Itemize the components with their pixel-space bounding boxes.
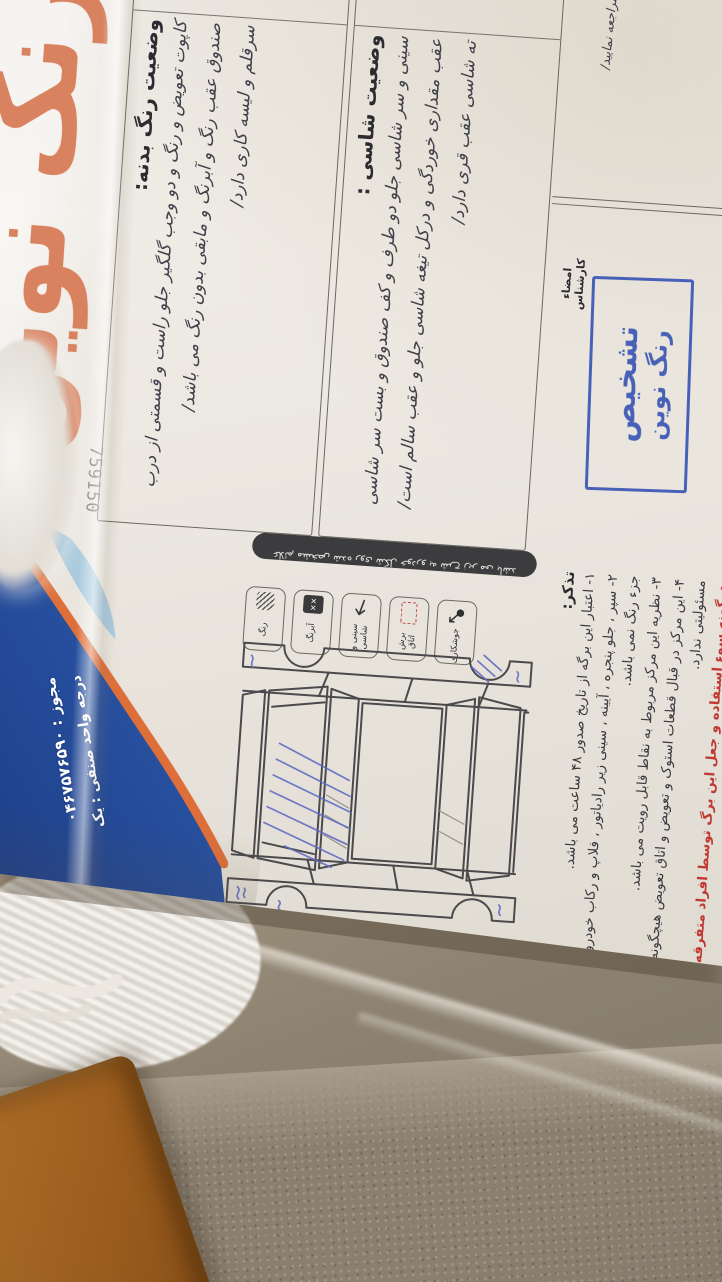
hatch-swatch-icon: [256, 591, 275, 610]
paint-section-box: وضعیت رنگ بدنه: کاپوت تعویض و رنگ و دو و…: [97, 0, 351, 536]
inspector-stamp: تشخیص رنگ نوین: [585, 276, 694, 493]
white-cord: [0, 946, 162, 1046]
photo-scene: رنگ نوین 759150 مجوز : ۰۴۶۷۵۷۶۵۹۰ درجه و…: [0, 0, 722, 1282]
chassis-section-box: وضعیت شاسی : سینی و سر شاسی جلو دو طرف و…: [318, 0, 564, 551]
weld-dot-icon: [446, 605, 467, 626]
refer-note-handwriting: مراجعه نمایید/: [591, 0, 620, 126]
stamp-line-1: تشخیص: [606, 325, 645, 443]
cabin-cut-dashed-icon: [400, 602, 417, 625]
notes-block: تذکر: ۱- اعتبار این برگه از تاریخ صدور ۴…: [533, 571, 722, 969]
car-body-diagram: [220, 632, 539, 932]
stamp-line-2: رنگ نوین: [641, 330, 673, 441]
document-content-rotated: رنگ نوین 759150 مجوز : ۰۴۶۷۵۷۶۵۹۰ درجه و…: [0, 0, 722, 982]
signature-label: امضاء کارشناس: [558, 244, 589, 324]
printed-outline: [226, 643, 531, 922]
double-x-swatch-icon: [303, 595, 324, 614]
chassis-arrow-icon: [350, 598, 371, 619]
column-divider-double-line: [552, 196, 722, 221]
document-paper: رنگ نوین 759150 مجوز : ۰۴۶۷۵۷۶۵۹۰ درجه و…: [0, 0, 722, 980]
